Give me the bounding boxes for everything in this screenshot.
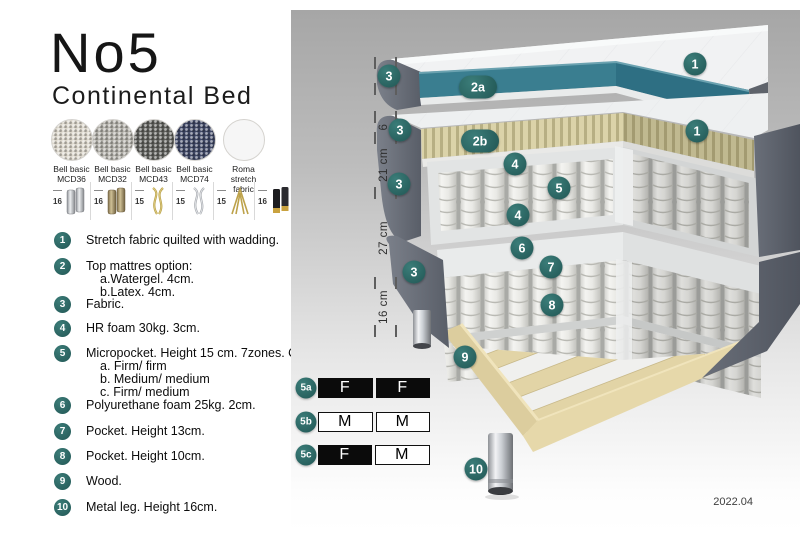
firmness-cell: M <box>376 412 431 432</box>
firmness-row: F M <box>318 445 430 465</box>
item-text: Stretch fabric quilted with wadding. <box>86 232 279 247</box>
second-mattress-layer <box>377 93 800 257</box>
leg-cylinder-black-gold-icon <box>269 186 293 216</box>
item-number-badge: 7 <box>54 423 71 440</box>
leg-height: 15 <box>217 197 226 206</box>
fabric-name: Bell basic <box>174 164 215 174</box>
leg-option: 16 <box>50 182 90 220</box>
callout-fabric: 3 <box>403 261 426 284</box>
fabric-name: Bell basic <box>133 164 174 174</box>
list-item: 2 Top mattres option: a.Watergel. 4cm. b… <box>54 258 194 299</box>
list-item: 9 Wood. <box>54 473 122 490</box>
callout-wood: 9 <box>454 346 477 369</box>
ruler-tick <box>374 57 376 69</box>
firmness-badge: 5b <box>296 412 317 433</box>
fabric-swatch-image <box>223 119 265 161</box>
callout-fabric: 3 <box>389 119 412 142</box>
fabric-name: Bell basic <box>51 164 92 174</box>
leg-height: 16 <box>94 197 103 206</box>
leg-hairpin-gold-icon <box>228 186 252 216</box>
fabric-swatch-image <box>174 119 216 161</box>
fabric-swatch-image <box>133 119 175 161</box>
list-item: 7 Pocket. Height 13cm. <box>54 423 205 440</box>
firmness-row: F F <box>318 378 430 398</box>
callout-metal-leg: 10 <box>465 458 488 481</box>
callout-pocket-13: 7 <box>540 256 563 279</box>
callout-fabric: 3 <box>388 173 411 196</box>
list-item: 10 Metal leg. Height 16cm. <box>54 499 217 516</box>
fabric-swatch-image <box>51 119 93 161</box>
firmness-badge: 5c <box>296 445 317 466</box>
leg-option: 15 <box>172 182 213 220</box>
version-label: 2022.04 <box>713 496 753 508</box>
item-number-badge: 6 <box>54 397 71 414</box>
ruler-label: 27 cm <box>378 221 390 255</box>
fabric-name: Bell basic <box>92 164 133 174</box>
list-item: 5 Micropocket. Height 15 cm. 7zones. Opt… <box>54 345 328 399</box>
item-text: Pocket. Height 13cm. <box>86 423 205 438</box>
leg-option: 16 <box>254 182 295 220</box>
callout-fabric: 3 <box>378 65 401 88</box>
callout-hr-foam: 4 <box>504 153 527 176</box>
ruler-label: 21 cm <box>378 148 390 182</box>
callout-watergel: 2a <box>459 76 497 99</box>
product-sheet: No5 Continental Bed Bell basic MCD36 Bel… <box>0 0 800 533</box>
ruler-tick <box>395 325 397 337</box>
item-number-badge: 4 <box>54 320 71 337</box>
leg-options: 16 16 15 <box>50 182 295 220</box>
item-text: HR foam 30kg. 3cm. <box>86 320 200 335</box>
item-text: Wood. <box>86 473 122 488</box>
callout-hr-foam: 4 <box>507 204 530 227</box>
ruler-tick <box>374 187 376 199</box>
item-number-badge: 9 <box>54 473 71 490</box>
leg-cylinder-bronze-icon <box>105 186 129 216</box>
diagram-panel: 6 6 21 cm 27 cm 16 cm 3 2a 1 3 2b 1 4 5 … <box>291 10 800 533</box>
firmness-cell: F <box>318 445 372 465</box>
leg-twist-silver-icon <box>187 186 211 216</box>
ruler-label: 16 cm <box>378 290 390 324</box>
firmness-cell: M <box>318 412 373 432</box>
callout-stretch-top: 1 <box>686 120 709 143</box>
item-number-badge: 2 <box>54 258 71 275</box>
callout-stretch-top: 1 <box>684 53 707 76</box>
ruler-tick <box>374 132 376 144</box>
fabric-swatch-image <box>92 119 134 161</box>
item-text: Top mattres option: a.Watergel. 4cm. b.L… <box>86 258 194 299</box>
item-number-badge: 3 <box>54 296 71 313</box>
leg-height: 15 <box>176 197 185 206</box>
ruler-tick <box>374 111 376 123</box>
leg-option: 15 <box>213 182 254 220</box>
leg-cylinder-silver-icon <box>64 186 88 216</box>
firmness-cell: M <box>375 445 431 465</box>
firmness-row: M M <box>318 412 430 432</box>
leg-option: 15 <box>131 182 172 220</box>
callout-pocket-10: 8 <box>541 294 564 317</box>
item-text: Metal leg. Height 16cm. <box>86 499 217 514</box>
leg-option: 16 <box>90 182 131 220</box>
list-item: 3 Fabric. <box>54 296 124 313</box>
item-number-badge: 5 <box>54 345 71 362</box>
callout-latex: 2b <box>461 130 499 153</box>
leg-twist-gold-icon <box>146 186 170 216</box>
ruler-tick <box>374 277 376 289</box>
leg-height: 16 <box>258 197 267 206</box>
item-text: Polyurethane foam 25kg. 2cm. <box>86 397 256 412</box>
leg-height: 16 <box>53 197 62 206</box>
firmness-cell: F <box>376 378 431 398</box>
item-number-badge: 8 <box>54 448 71 465</box>
item-text: Fabric. <box>86 296 124 311</box>
product-subtitle: Continental Bed <box>52 82 252 111</box>
product-title: No5 <box>50 20 162 85</box>
list-item: 6 Polyurethane foam 25kg. 2cm. <box>54 397 256 414</box>
ruler-tick <box>374 83 376 95</box>
firmness-cell: F <box>318 378 373 398</box>
item-number-badge: 10 <box>54 499 71 516</box>
list-item: 8 Pocket. Height 10cm. <box>54 448 205 465</box>
fabric-name: Roma <box>223 164 264 174</box>
callout-pu-foam: 6 <box>511 237 534 260</box>
ruler-tick <box>395 277 397 289</box>
list-item: 1 Stretch fabric quilted with wadding. <box>54 232 279 249</box>
leg-height: 15 <box>135 197 144 206</box>
firmness-badge: 5a <box>296 378 317 399</box>
item-text: Pocket. Height 10cm. <box>86 448 205 463</box>
ruler-tick <box>374 325 376 337</box>
list-item: 4 HR foam 30kg. 3cm. <box>54 320 200 337</box>
item-number-badge: 1 <box>54 232 71 249</box>
callout-micropocket: 5 <box>548 177 571 200</box>
